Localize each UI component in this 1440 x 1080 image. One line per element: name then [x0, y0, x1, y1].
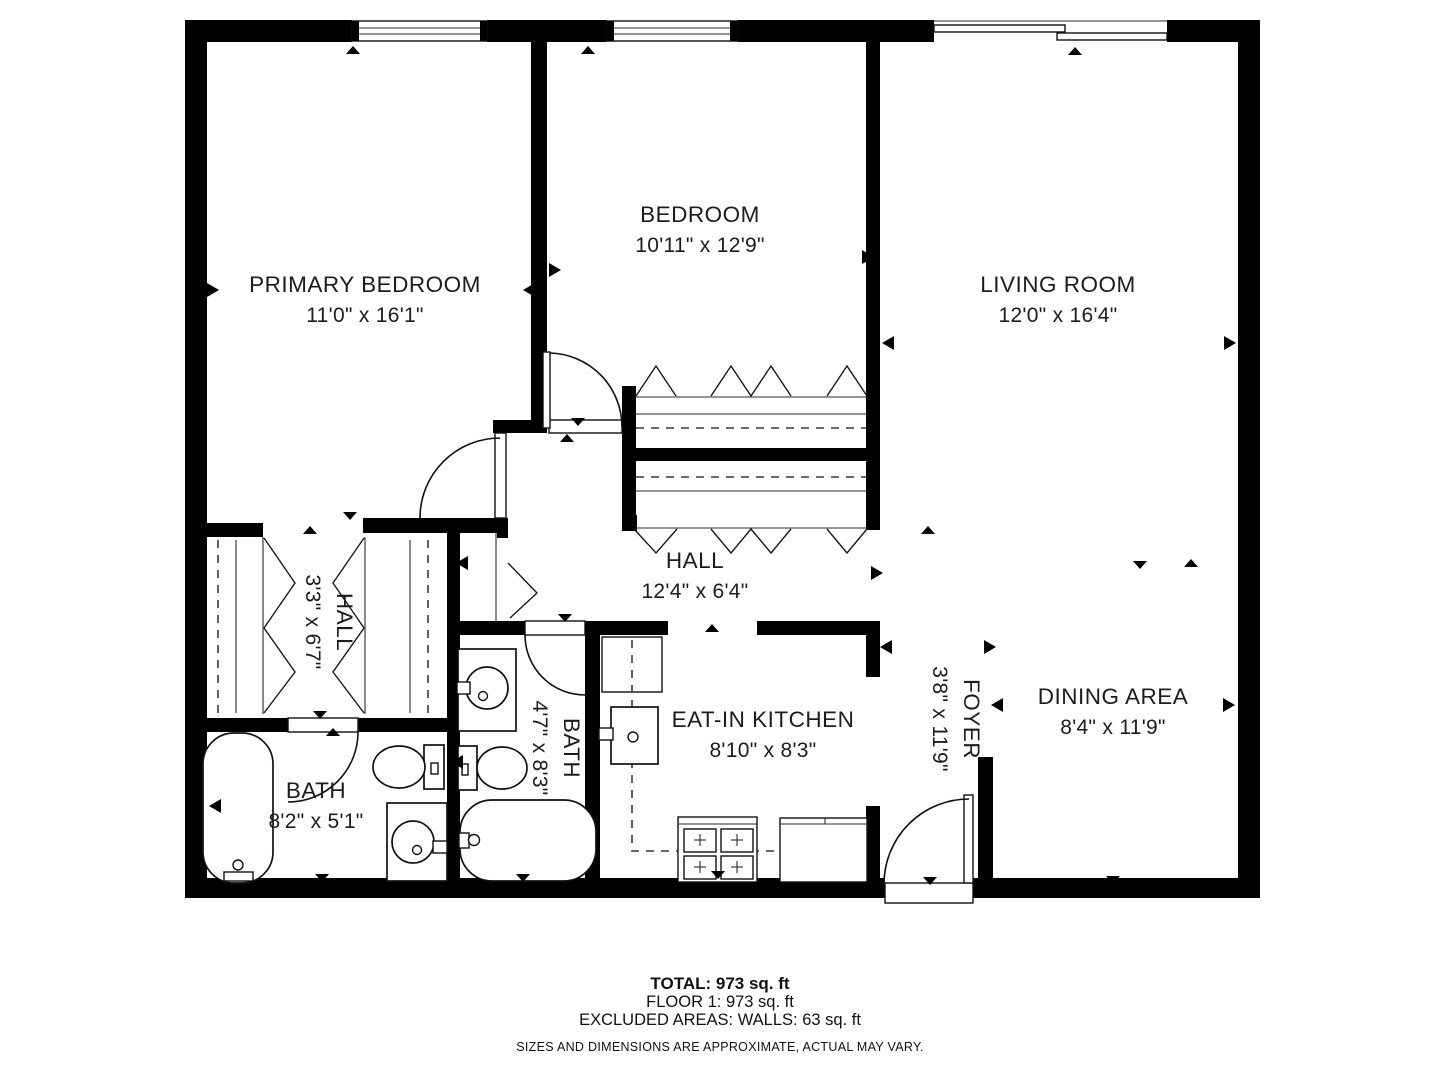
wall-kitchen-top-b — [757, 621, 880, 635]
room-label-hall: HALL — [666, 548, 724, 573]
room-label-eat-in-kitchen: EAT-IN KITCHEN — [672, 707, 855, 732]
wall-top-a — [185, 20, 352, 42]
window-bedroom — [607, 21, 737, 41]
sink-vanity-icon — [387, 803, 447, 881]
room-dims-living-room: 12'0" x 16'4" — [998, 304, 1117, 327]
room-dims-bath-2: 4'7" x 8'3" — [528, 700, 551, 795]
room-dims-hall: 12'4" x 6'4" — [641, 580, 748, 603]
summary-footer: TOTAL: 973 sq. ft FLOOR 1: 973 sq. ft EX… — [0, 974, 1440, 1054]
wall-closet-middle — [628, 448, 880, 461]
wall-bottom-b — [973, 878, 1260, 898]
wall-top-c — [737, 20, 934, 42]
primary-bedroom-door — [420, 433, 506, 518]
room-label-hall-small: HALL — [332, 593, 357, 651]
wall-kitchen-east-b — [866, 806, 880, 883]
walls — [185, 20, 1260, 898]
room-dims-eat-in-kitchen: 8'10" x 8'3" — [709, 739, 816, 762]
counter-icon — [780, 818, 867, 882]
bath1-fixtures — [203, 733, 447, 883]
wall-closet-sw-jamb — [622, 515, 637, 531]
wall-bath1-top-a — [200, 718, 290, 732]
wall-primary-door-jamb — [497, 518, 508, 538]
room-dims-primary-bedroom: 11'0" x 16'1" — [306, 304, 424, 327]
wall-primary-south — [363, 518, 508, 533]
wall-top-b — [487, 20, 607, 42]
bifold-doors-bedroom-closet — [636, 366, 867, 396]
sliding-door-living-room — [934, 20, 1167, 42]
wall-foyer-dining-stub — [978, 757, 993, 883]
room-label-living-room: LIVING ROOM — [980, 272, 1136, 297]
wall-kitchen-east-a — [866, 621, 880, 677]
wall-right — [1238, 20, 1260, 898]
total-area-text: TOTAL: 973 sq. ft — [0, 974, 1440, 993]
room-label-bath-1: BATH — [286, 778, 346, 803]
room-label-bath-2: BATH — [559, 718, 584, 778]
room-label-primary-bedroom: PRIMARY BEDROOM — [249, 272, 481, 297]
window-primary-bedroom — [352, 21, 487, 41]
room-dims-dining-area: 8'4" x 11'9" — [1060, 716, 1166, 739]
bathtub-icon — [459, 800, 596, 881]
wall-bath2-top — [460, 621, 525, 635]
bath2-door — [525, 621, 585, 695]
wall-bath1-top-b — [358, 718, 447, 732]
toilet-icon — [458, 746, 527, 790]
kitchen-sink-icon — [599, 707, 658, 764]
bifold-doors-left-closet — [264, 538, 295, 713]
room-labels: PRIMARY BEDROOM11'0" x 16'1"BEDROOM10'11… — [249, 202, 1188, 833]
room-dims-bedroom: 10'11" x 12'9" — [635, 234, 765, 257]
wall-kitchen-top-a — [585, 621, 668, 635]
floor-plan-page: { "page": { "background": "#ffffff", "wa… — [0, 0, 1440, 1080]
floor-plan-drawing: PRIMARY BEDROOM11'0" x 16'1"BEDROOM10'11… — [0, 0, 1440, 1080]
excluded-areas-text: EXCLUDED AREAS: WALLS: 63 sq. ft — [0, 1011, 1440, 1029]
room-label-foyer: FOYER — [959, 679, 984, 759]
wall-primary-door-jog — [493, 420, 545, 433]
room-label-bedroom: BEDROOM — [640, 202, 760, 227]
wall-bedroom-living-divider — [866, 42, 880, 530]
disclaimer-text: SIZES AND DIMENSIONS ARE APPROXIMATE, AC… — [0, 1040, 1440, 1054]
linen-closet — [496, 533, 537, 623]
toilet-icon — [373, 745, 444, 789]
room-label-dining-area: DINING AREA — [1038, 684, 1189, 709]
floor-area-text: FLOOR 1: 973 sq. ft — [0, 993, 1440, 1011]
room-dims-foyer: 3'8" x 11'9" — [928, 666, 951, 772]
entry-door — [884, 795, 973, 903]
room-dims-hall-small: 3'3" x 6'7" — [301, 574, 324, 669]
sink-vanity-icon — [457, 649, 516, 731]
room-dims-bath-1: 8'2" x 5'1" — [268, 810, 363, 833]
wall-small-hall-top — [200, 523, 263, 537]
